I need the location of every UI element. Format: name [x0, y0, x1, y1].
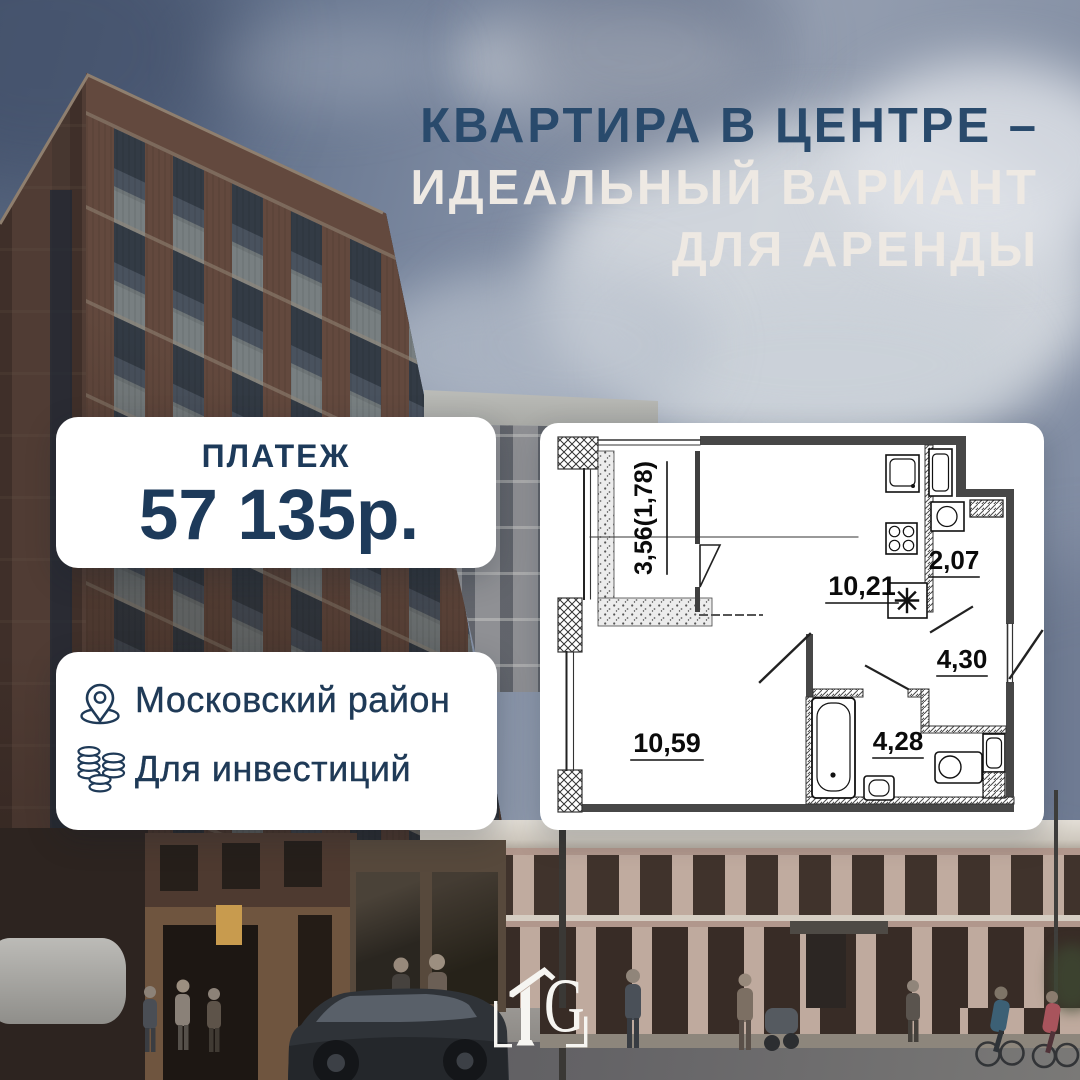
svg-text:G: G — [544, 962, 585, 1048]
